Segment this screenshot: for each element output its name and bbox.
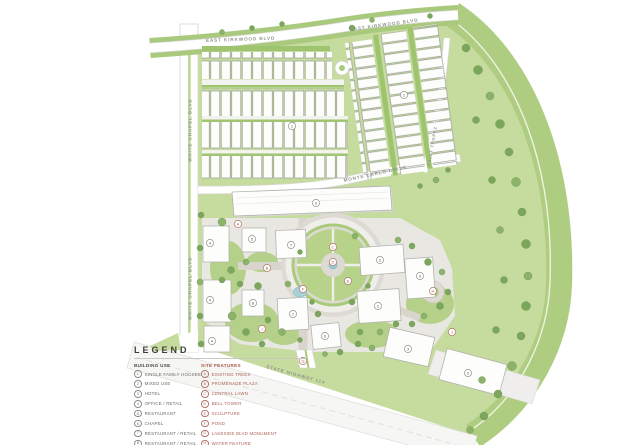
- tree-icon: [197, 279, 203, 285]
- legend-item-symbol: D: [201, 400, 209, 408]
- tree-icon: [479, 377, 486, 384]
- tree-icon: [497, 227, 504, 234]
- tree-icon: [496, 120, 505, 129]
- building-marker: 4: [206, 239, 213, 246]
- legend-item: 2MIXED USE: [134, 380, 192, 388]
- tree-icon: [197, 245, 203, 251]
- tree-icon: [425, 259, 432, 266]
- legend-item-label: BELL TOWER: [212, 401, 242, 406]
- legend-item-label: CENTRAL LAWN: [212, 391, 248, 396]
- legend-item-symbol: 8: [134, 440, 142, 445]
- building-marker: 1: [400, 91, 407, 98]
- legend-title: LEGEND: [134, 345, 306, 359]
- tree-icon: [349, 299, 355, 305]
- legend-item: BPROMENADE PLAZA: [201, 380, 306, 388]
- legend-item-label: EXISTING TREES: [212, 372, 251, 377]
- legend-item: HWATER FEATURE: [201, 440, 306, 445]
- svg-text:A: A: [237, 221, 240, 226]
- tree-icon: [255, 283, 262, 290]
- legend-item-label: RESTAURANT: [145, 411, 176, 416]
- legend-item: 7RESTAURANT / RETAIL: [134, 430, 192, 438]
- feature-marker: E: [344, 277, 351, 284]
- feature-marker: I: [258, 325, 265, 332]
- legend-item: 3HOTEL: [134, 390, 192, 398]
- tree-icon: [298, 250, 303, 255]
- tree-icon: [501, 277, 508, 284]
- street-label-white-chapel-upper: WHITE CHAPEL BLVD: [188, 98, 193, 162]
- building-marker: 3: [404, 345, 411, 352]
- tree-icon: [198, 212, 204, 218]
- tree-icon: [409, 243, 415, 249]
- tree-icon: [352, 233, 358, 239]
- legend-item: 4OFFICE / RETAIL: [134, 400, 192, 408]
- tree-icon: [228, 267, 235, 274]
- svg-text:D: D: [332, 259, 335, 264]
- legend-item-label: POND: [212, 421, 226, 426]
- building-marker: 5: [248, 235, 255, 242]
- tree-icon: [393, 321, 399, 327]
- tree-icon: [366, 284, 371, 289]
- svg-text:B: B: [266, 265, 269, 270]
- tree-icon: [337, 349, 343, 355]
- tree-icon: [522, 302, 531, 311]
- legend-item-label: OFFICE / RETAIL: [145, 401, 183, 406]
- tree-icon: [467, 427, 474, 434]
- legend-item: 8RESTAURANT / RETAIL: [134, 440, 192, 445]
- legend-item-label: MIXED USE: [145, 381, 171, 386]
- building-marker: 2: [464, 369, 471, 376]
- tree-icon: [355, 341, 361, 347]
- legend-item-symbol: H: [201, 440, 209, 445]
- tree-icon: [369, 345, 375, 351]
- tree-icon: [489, 177, 496, 184]
- tree-icon: [486, 92, 494, 100]
- tree-icon: [505, 148, 513, 156]
- tree-icon: [421, 313, 427, 319]
- tree-icon: [279, 329, 286, 336]
- legend-item-symbol: 1: [134, 370, 142, 378]
- feature-marker: J: [448, 328, 455, 335]
- legend-building-use-list: 1SINGLE FAMILY HOUSES2MIXED USE3HOTEL4OF…: [134, 370, 192, 445]
- building-marker: 4: [208, 337, 215, 344]
- legend-item-label: CHAPEL: [145, 421, 164, 426]
- tree-icon: [250, 26, 255, 31]
- tree-icon: [237, 281, 243, 287]
- legend-item-label: RESTAURANT / RETAIL: [145, 431, 197, 436]
- legend-item-symbol: B: [201, 380, 209, 388]
- tree-icon: [219, 277, 225, 283]
- tree-icon: [522, 240, 531, 249]
- tree-icon: [437, 303, 444, 310]
- building-marker: 8: [249, 299, 256, 306]
- svg-text:I: I: [261, 326, 262, 331]
- tree-icon: [508, 362, 517, 371]
- tree-icon: [474, 66, 483, 75]
- legend-item-label: HOTEL: [145, 391, 161, 396]
- tree-icon: [265, 317, 271, 323]
- building-marker: 2: [376, 256, 383, 263]
- legend-item-symbol: C: [201, 390, 209, 398]
- legend-item-symbol: 6: [134, 420, 142, 428]
- feature-marker: F: [299, 285, 306, 292]
- tree-icon: [315, 311, 321, 317]
- tree-icon: [428, 14, 433, 19]
- legend-item-label: RESTAURANT / RETAIL: [145, 441, 197, 445]
- building-marker: 1: [288, 122, 295, 129]
- tree-icon: [493, 327, 500, 334]
- legend: LEGEND BUILDING USE 1SINGLE FAMILY HOUSE…: [134, 345, 324, 445]
- legend-item-symbol: A: [201, 370, 209, 378]
- legend-item-label: SCULPTURE: [212, 411, 240, 416]
- legend-site-features-list: AEXISTING TREESBPROMENADE PLAZACCENTRAL …: [201, 370, 306, 445]
- svg-text:E: E: [347, 278, 350, 283]
- residential-block-east: [344, 24, 459, 180]
- building-marker: 6: [321, 332, 328, 339]
- tree-icon: [395, 237, 401, 243]
- legend-item: FPOND: [201, 420, 306, 428]
- legend-item-symbol: 4: [134, 400, 142, 408]
- tree-icon: [446, 168, 451, 173]
- street-label-white-chapel-lower: WHITE CHAPEL BLVD: [188, 256, 193, 320]
- legend-item: 6CHAPEL: [134, 420, 192, 428]
- tree-icon: [439, 269, 445, 275]
- building-marker: 7: [289, 310, 296, 317]
- legend-item: GLAKESIDE BLVD MONUMENT: [201, 430, 306, 438]
- tree-icon: [370, 18, 375, 23]
- building-marker: 4: [206, 296, 213, 303]
- legend-item: ESCULPTURE: [201, 410, 306, 418]
- svg-text:H: H: [432, 288, 435, 293]
- tree-icon: [377, 329, 383, 335]
- tree-icon: [218, 218, 226, 226]
- tree-icon: [228, 312, 236, 320]
- building-marker: 3: [416, 272, 423, 279]
- building-marker: 9: [312, 199, 319, 206]
- tree-icon: [433, 177, 439, 183]
- feature-marker: H: [429, 287, 436, 294]
- legend-building-use-title: BUILDING USE: [134, 363, 192, 368]
- legend-item-symbol: 2: [134, 380, 142, 388]
- tree-icon: [462, 44, 470, 52]
- tree-icon: [280, 22, 285, 27]
- legend-item: 5RESTAURANT: [134, 410, 192, 418]
- tree-icon: [512, 178, 521, 187]
- legend-item-symbol: G: [201, 430, 209, 438]
- feature-marker: D: [329, 258, 336, 265]
- tree-icon: [409, 321, 415, 327]
- svg-text:C: C: [332, 244, 335, 249]
- tree-icon: [220, 30, 225, 35]
- tree-icon: [480, 412, 488, 420]
- legend-item-symbol: 7: [134, 430, 142, 438]
- tree-icon: [418, 184, 423, 189]
- legend-site-features-title: SITE FEATURES: [201, 363, 306, 368]
- tree-icon: [445, 289, 451, 295]
- feature-marker: B: [263, 264, 270, 271]
- legend-item-symbol: E: [201, 410, 209, 418]
- tree-icon: [518, 208, 526, 216]
- legend-item: 1SINGLE FAMILY HOUSES: [134, 370, 192, 378]
- tree-icon: [517, 332, 525, 340]
- building-marker: 2: [374, 302, 381, 309]
- tree-icon: [357, 329, 363, 335]
- site-plan-page: EAST KIRKWOOD BLVD EAST KIRKWOOD BLVD WH…: [0, 0, 640, 445]
- residential-block-west: [202, 46, 349, 180]
- tree-icon: [197, 313, 203, 319]
- tree-icon: [494, 390, 502, 398]
- legend-item: DBELL TOWER: [201, 400, 306, 408]
- legend-item-label: SINGLE FAMILY HOUSES: [145, 372, 201, 377]
- svg-text:J: J: [451, 329, 453, 334]
- tree-icon: [243, 259, 249, 265]
- tree-icon: [473, 117, 480, 124]
- building-marker: 7: [287, 241, 294, 248]
- feature-marker: A: [234, 220, 241, 227]
- legend-item: AEXISTING TREES: [201, 370, 306, 378]
- tree-icon: [285, 281, 291, 287]
- legend-item-symbol: 3: [134, 390, 142, 398]
- legend-item-label: PROMENADE PLAZA: [212, 381, 258, 386]
- tree-icon: [298, 338, 303, 343]
- legend-item-label: WATER FEATURE: [212, 441, 251, 445]
- legend-item-symbol: 5: [134, 410, 142, 418]
- tree-icon: [243, 329, 250, 336]
- legend-item-symbol: F: [201, 420, 209, 428]
- feature-marker: C: [329, 243, 336, 250]
- legend-item: CCENTRAL LAWN: [201, 390, 306, 398]
- tree-icon: [310, 300, 315, 305]
- legend-item-label: LAKESIDE BLVD MONUMENT: [212, 431, 277, 436]
- tree-icon: [524, 272, 532, 280]
